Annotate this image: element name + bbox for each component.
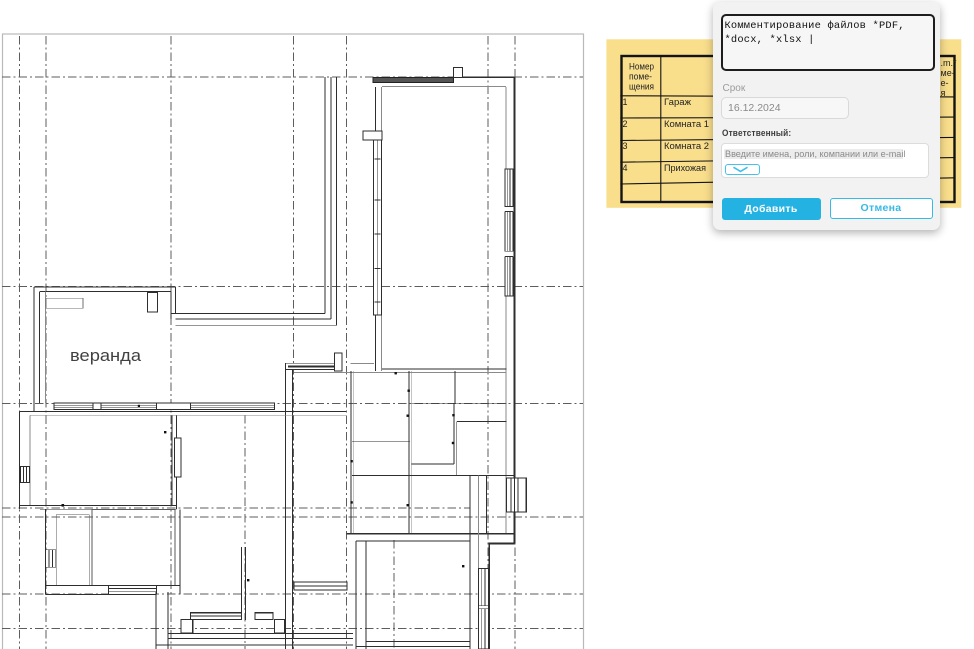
svg-text:Комната 1: Комната 1 [664,119,709,129]
svg-text:Комната 2: Комната 2 [664,141,709,151]
svg-text:веранда: веранда [70,346,142,365]
svg-text:я: я [941,88,946,98]
svg-text:.m.*: .m.* [941,58,957,68]
svg-text:Прихожая: Прихожая [664,163,706,173]
svg-text:4: 4 [623,163,628,173]
svg-text:Гараж: Гараж [664,97,691,107]
svg-text:поме-: поме- [629,72,652,82]
svg-text:3: 3 [623,141,628,151]
svg-text:е-: е- [941,78,949,88]
svg-text:1: 1 [623,97,628,107]
svg-text:Номер: Номер [629,62,654,72]
svg-text:2: 2 [623,119,628,129]
svg-text:ме-: ме- [941,68,955,78]
svg-text:щения: щения [629,82,654,92]
